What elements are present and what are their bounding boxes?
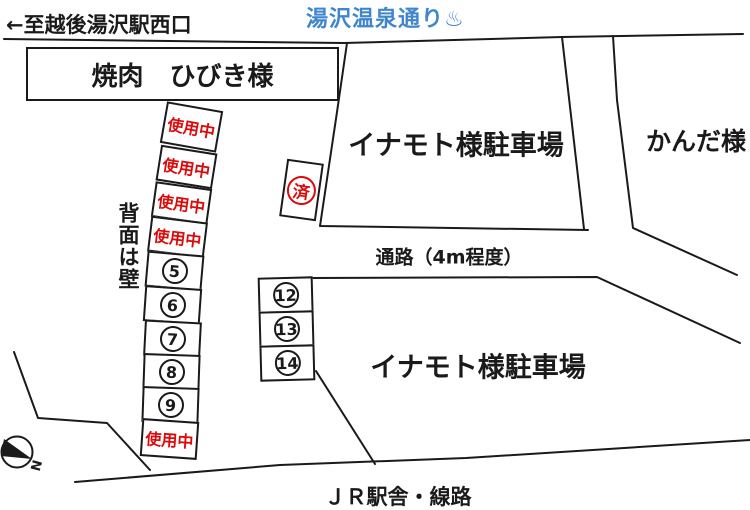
parking-spot-13: 13	[259, 310, 315, 347]
spot-number: 12	[272, 282, 299, 309]
spot-number: 7	[159, 325, 186, 352]
spot-number: 8	[158, 359, 185, 386]
parking-spot-in-use: 使用中	[140, 418, 200, 460]
compass-n-label: N	[26, 458, 43, 472]
in-use-label: 使用中	[145, 425, 195, 452]
left-boundary-line	[14, 352, 150, 470]
parking-map-canvas: N ←至越後湯沢駅西口 湯沢温泉通り♨ 焼肉 ひびき様 イナモト様駐車場 かんだ…	[0, 0, 750, 510]
in-use-label: 使用中	[161, 151, 212, 182]
yakiniku-building-label: 焼肉 ひびき様	[91, 56, 273, 93]
middle-parking-column: 12 13 14	[258, 276, 316, 381]
wall-note-label: 背面は壁	[113, 202, 143, 290]
street-title-label: 湯沢温泉通り♨	[306, 1, 465, 33]
in-use-label: 使用中	[166, 111, 217, 143]
spot-number: 6	[159, 291, 187, 319]
inamoto-lower-lot-label: イナモト様駐車場	[370, 346, 585, 385]
in-use-label: 使用中	[152, 222, 203, 252]
done-label: 済	[291, 176, 311, 203]
parking-spot-14: 14	[259, 344, 315, 381]
yakiniku-building: 焼肉 ひびき様	[26, 47, 339, 101]
spot-number: 5	[160, 257, 188, 285]
spot-number: 9	[157, 392, 184, 419]
spot-number: 13	[273, 316, 300, 343]
station-direction-label: ←至越後湯沢駅西口	[6, 9, 192, 39]
parking-spot-12: 12	[258, 276, 314, 313]
passage-width-label: 通路（4m程度）	[375, 243, 522, 270]
inamoto-upper-lot-label: イナモト様駐車場	[348, 124, 563, 163]
kanda-lot-label: かんだ様	[646, 122, 746, 158]
jr-station-label: ＪＲ駅舎・線路	[325, 481, 472, 510]
spot-number: 14	[274, 350, 301, 377]
done-stamp: 済	[285, 174, 318, 207]
compass: N	[1, 437, 44, 473]
in-use-label: 使用中	[156, 188, 207, 218]
parking-spot-8: 8	[142, 353, 200, 391]
